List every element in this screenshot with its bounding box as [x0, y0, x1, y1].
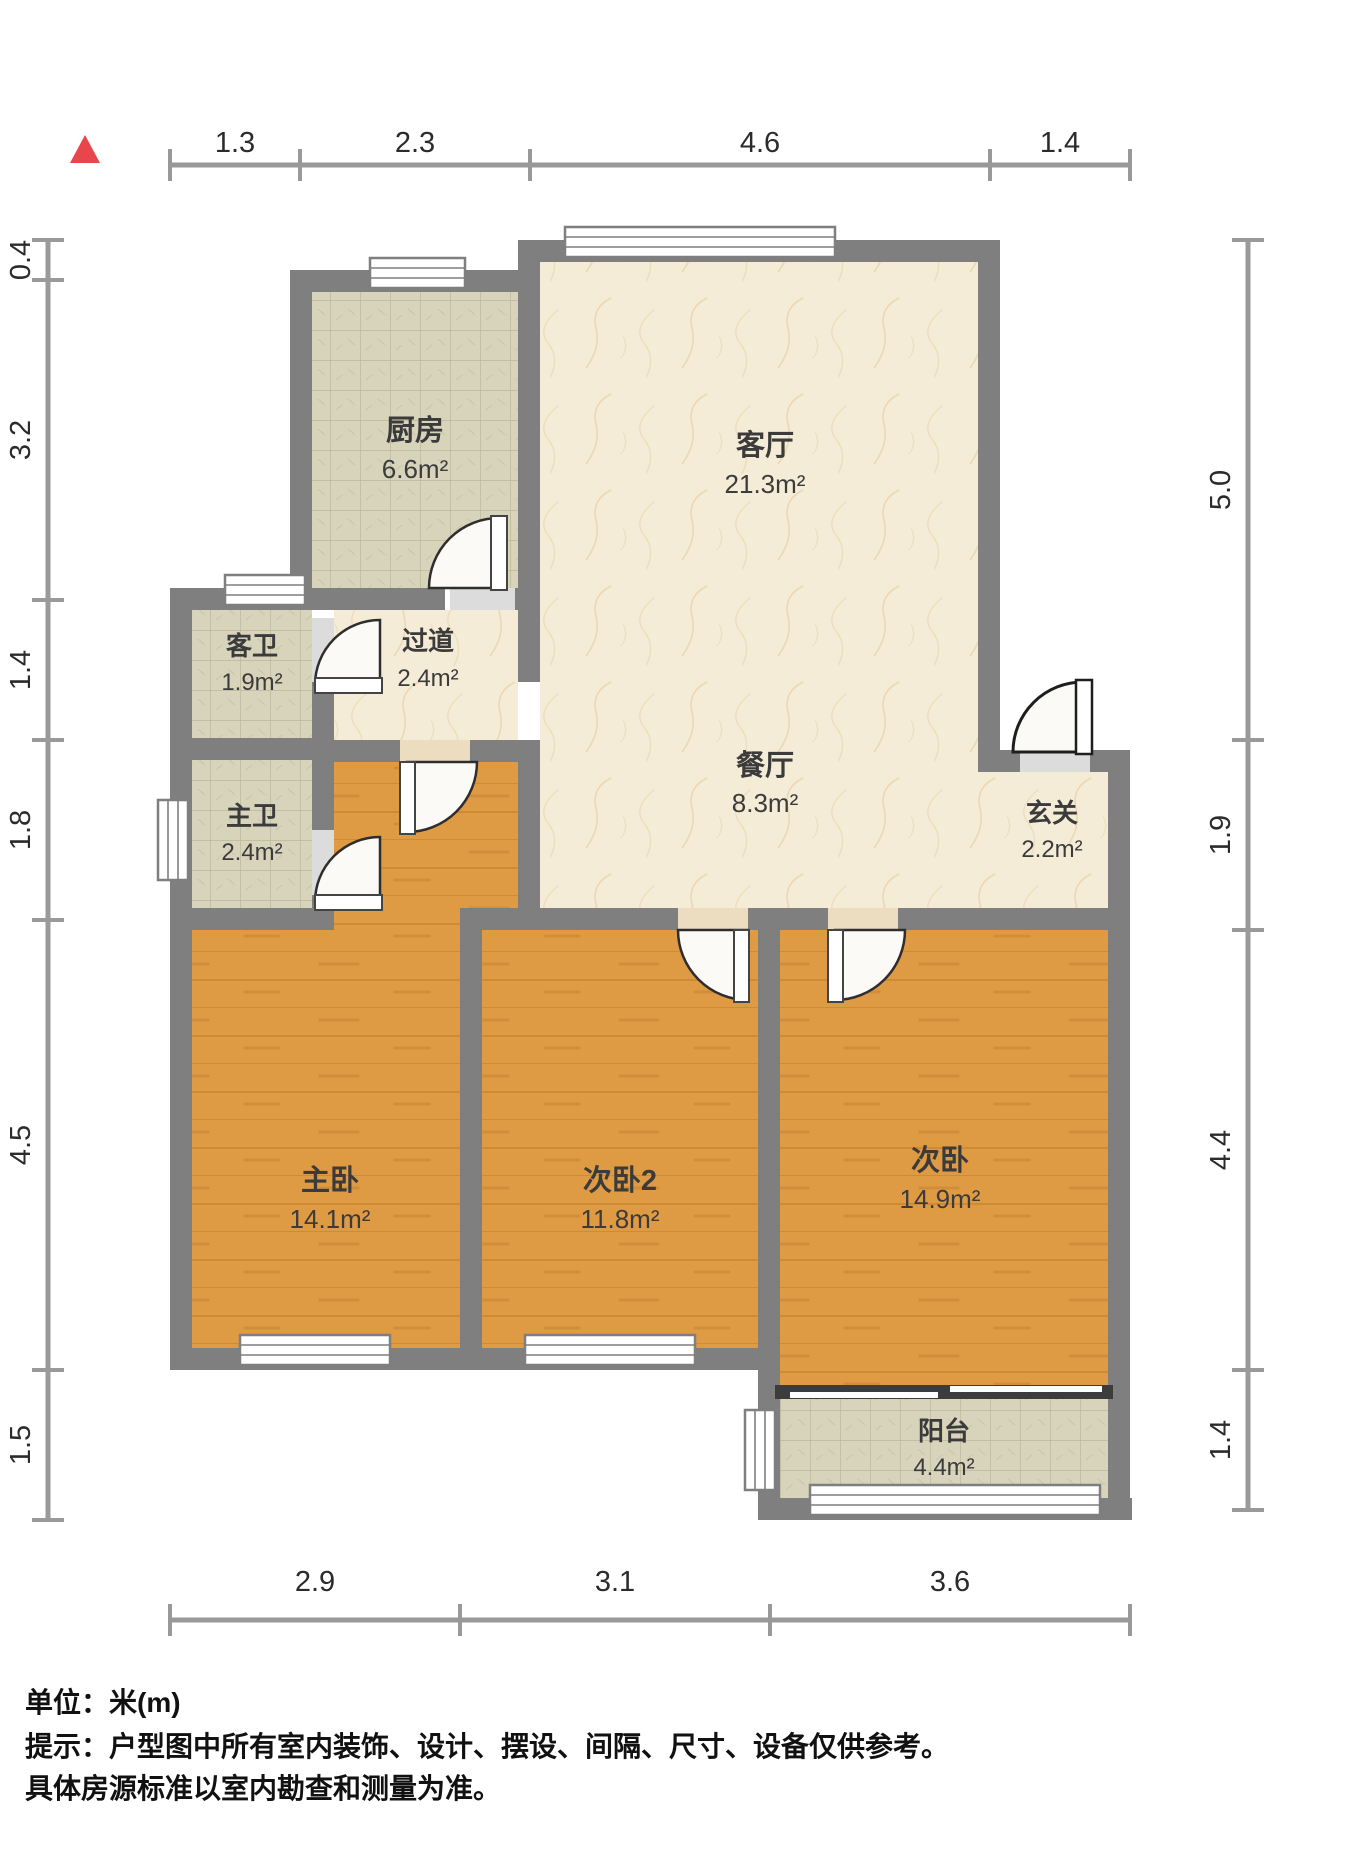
- living-dining-floor: [540, 262, 978, 930]
- dim-bottom-0: 2.9: [295, 1566, 335, 1598]
- entry-door: [1013, 680, 1092, 754]
- dim-left-3: 1.8: [5, 810, 37, 850]
- master-bath-label: 主卫: [226, 801, 278, 831]
- hallway-area: 2.4m²: [397, 665, 458, 692]
- footer-disclaimer-line2: 具体房源标准以室内勘查和测量为准。: [25, 1772, 501, 1804]
- dim-top-3: 1.4: [1040, 127, 1080, 159]
- entry-hall-label: 玄关: [1026, 798, 1078, 828]
- dim-right-2: 4.4: [1205, 1130, 1237, 1170]
- dim-right-1: 1.9: [1205, 815, 1237, 855]
- bedroom-label: 次卧: [911, 1144, 969, 1177]
- dining-room-area: 8.3m²: [732, 788, 799, 818]
- dim-top-0: 1.3: [215, 127, 255, 159]
- floorplan-canvas: 厨房 6.6m² 客厅 21.3m² 客卫 1.9m² 过道 2.4m² 主卫 …: [0, 0, 1367, 1860]
- footer-disclaimer-line1: 提示：户型图中所有室内装饰、设计、摆设、间隔、尺寸、设备仅供参考。: [25, 1730, 949, 1762]
- guest-bath-area: 1.9m²: [221, 669, 282, 696]
- master-bath-window: [158, 800, 188, 880]
- hallway-label: 过道: [402, 626, 454, 656]
- master-bedroom-window: [240, 1335, 390, 1365]
- guest-bath-label: 客卫: [226, 631, 278, 661]
- dim-right-3: 1.4: [1205, 1420, 1237, 1460]
- master-bath-floor: [192, 760, 312, 908]
- master-bedroom-floor: [192, 930, 460, 1348]
- bedroom2-label: 次卧2: [583, 1164, 657, 1197]
- bedroom2-window: [525, 1335, 695, 1365]
- master-bedroom-connector-floor: [334, 908, 460, 930]
- living-room-window: [565, 227, 835, 257]
- kitchen-label: 厨房: [386, 414, 444, 447]
- dim-left-2: 1.4: [5, 650, 37, 690]
- floorplan-page: 厨房 6.6m² 客厅 21.3m² 客卫 1.9m² 过道 2.4m² 主卫 …: [0, 0, 1367, 1860]
- balcony-window: [810, 1485, 1100, 1515]
- dim-bottom-2: 3.6: [930, 1566, 970, 1598]
- dim-right-0: 5.0: [1205, 470, 1237, 510]
- living-room-area: 21.3m²: [725, 469, 806, 499]
- dim-left-5: 1.5: [5, 1425, 37, 1465]
- dim-left-4: 4.5: [5, 1125, 37, 1165]
- balcony-label: 阳台: [918, 1416, 970, 1446]
- guest-bath-window: [225, 575, 305, 605]
- dining-room-label: 餐厅: [736, 749, 794, 782]
- kitchen-area: 6.6m²: [382, 454, 449, 484]
- footer-unit: 单位：米(m): [25, 1686, 181, 1718]
- dim-top-1: 2.3: [395, 127, 435, 159]
- bedroom2-area: 11.8m²: [581, 1204, 660, 1234]
- balcony-area: 4.4m²: [913, 1454, 974, 1481]
- master-bath-area: 2.4m²: [221, 839, 282, 866]
- balcony-side-window: [745, 1410, 775, 1490]
- balcony-sliding-door: [775, 1385, 1113, 1399]
- bedroom-area: 14.9m²: [900, 1184, 981, 1214]
- living-room-label: 客厅: [736, 428, 794, 462]
- entry-hall-area: 2.2m²: [1021, 836, 1082, 863]
- dim-bottom-1: 3.1: [595, 1566, 635, 1598]
- master-bedroom-label: 主卧: [301, 1164, 359, 1197]
- compass-north-icon: [70, 135, 100, 163]
- dim-top-2: 4.6: [740, 127, 780, 159]
- dim-left-0: 0.4: [5, 240, 37, 280]
- kitchen-window: [370, 258, 465, 288]
- master-bedroom-area: 14.1m²: [290, 1204, 371, 1234]
- balcony-floor: [780, 1398, 1108, 1498]
- footer: 单位：米(m) 提示：户型图中所有室内装饰、设计、摆设、间隔、尺寸、设备仅供参考…: [25, 1686, 949, 1804]
- dim-left-1: 3.2: [5, 420, 37, 460]
